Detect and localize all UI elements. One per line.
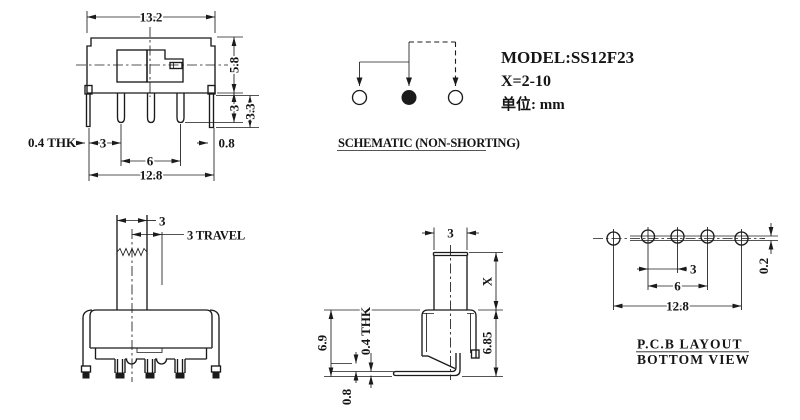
- dim-label-span: 6: [147, 154, 154, 169]
- contact-terminal-left: [353, 91, 367, 105]
- dim-label-knob-height: X: [480, 276, 495, 286]
- dim-label-body-height: 6.9: [315, 334, 330, 351]
- dim-label-cover-height: 6.85: [480, 331, 495, 354]
- pcb-captions: P.C.B LAYOUT BOTTOM VIEW: [636, 337, 750, 368]
- terminal-pin-3: [177, 93, 184, 123]
- units-note: 单位: mm: [501, 95, 565, 113]
- front-pins: [115, 359, 185, 379]
- side-view-dimensions: 3 X 6.85 6.9 0.4 THK 0.8: [315, 226, 504, 406]
- schematic: SCHEMATIC (NON-SHORTING): [337, 42, 520, 151]
- side-rear-tab: [472, 350, 480, 358]
- contact-terminal-right: [449, 91, 463, 105]
- dim-label-width: 13.2: [140, 10, 163, 25]
- front-view-dimensions: 3 3 TRAVEL: [117, 214, 245, 286]
- pcb-layout-view: 0.2 3 6 12.8 P.C.B LAYOUT BOTTOM VIEW: [593, 223, 778, 367]
- top-view-dimensions: 13.2 5.8 3 3.3 0.4 THK 3 6 12.8: [28, 10, 259, 183]
- terminal-pin-2: [148, 93, 155, 123]
- dim-label-thickness: 0.4 THK: [28, 135, 77, 150]
- hole-cross-ticks: [614, 227, 742, 248]
- side-leg-left-foot: [83, 372, 90, 379]
- dim-label-side-knob-width: 3: [447, 226, 454, 241]
- dim-label-total: 12.8: [140, 168, 163, 183]
- slider-knob-base: [147, 50, 183, 82]
- housing-bottom-bevel: [428, 356, 455, 369]
- dim-label-pcb-span: 6: [674, 279, 681, 294]
- dim-label-pcb-pitch: 3: [690, 262, 697, 277]
- drawing-canvas: 13.2 5.8 3 3.3 0.4 THK 3 6 12.8: [0, 0, 800, 420]
- top-view: 13.2 5.8 3 3.3 0.4 THK 3 6 12.8: [28, 10, 259, 183]
- housing-outline: [90, 310, 212, 348]
- pcb-holes: [593, 227, 778, 248]
- contact-common-filled: [402, 90, 417, 105]
- dim-label-pin-length: 3: [227, 104, 242, 111]
- mount-leg-left: [87, 94, 91, 127]
- dim-label-pin-offset: 0.8: [339, 388, 354, 405]
- dim-label-height: 5.8: [227, 56, 242, 73]
- dim-label-knob-width: 3: [159, 214, 166, 229]
- dim-label-pcb-total: 12.8: [666, 299, 689, 314]
- dim-label-leg-length: 3.3: [243, 103, 258, 120]
- side-view: 3 X 6.85 6.9 0.4 THK 0.8: [315, 226, 504, 406]
- side-housing-outline: [422, 310, 476, 358]
- pcb-caption-line1: P.C.B LAYOUT: [637, 337, 743, 352]
- pcb-caption-line2: BOTTOM VIEW: [637, 352, 750, 367]
- terminal-pin-1: [118, 93, 125, 123]
- dim-label-leg-width: 0.8: [219, 136, 236, 151]
- front-view: 3 3 TRAVEL: [82, 214, 246, 383]
- base-profile: [96, 359, 207, 364]
- dim-label-side-thickness: 0.4 THK: [358, 306, 373, 355]
- drawing-sheet: 13.2 5.8 3 3.3 0.4 THK 3 6 12.8: [0, 0, 800, 420]
- title-block: MODEL:SS12F23 X=2-10 单位: mm: [501, 48, 634, 113]
- knob-serrated-actuator: [117, 50, 147, 82]
- top-view-body: [76, 27, 228, 128]
- schematic-caption: SCHEMATIC (NON-SHORTING): [338, 136, 520, 150]
- dim-label-travel: 3 TRAVEL: [187, 229, 245, 243]
- side-view-body: [394, 245, 480, 380]
- dim-label-row-offset: 0.2: [756, 258, 771, 274]
- model-number: MODEL:SS12F23: [501, 48, 634, 67]
- dim-label-pitch: 3: [100, 136, 107, 151]
- side-leg-right-foot: [213, 372, 220, 379]
- x-range: X=2-10: [501, 73, 551, 90]
